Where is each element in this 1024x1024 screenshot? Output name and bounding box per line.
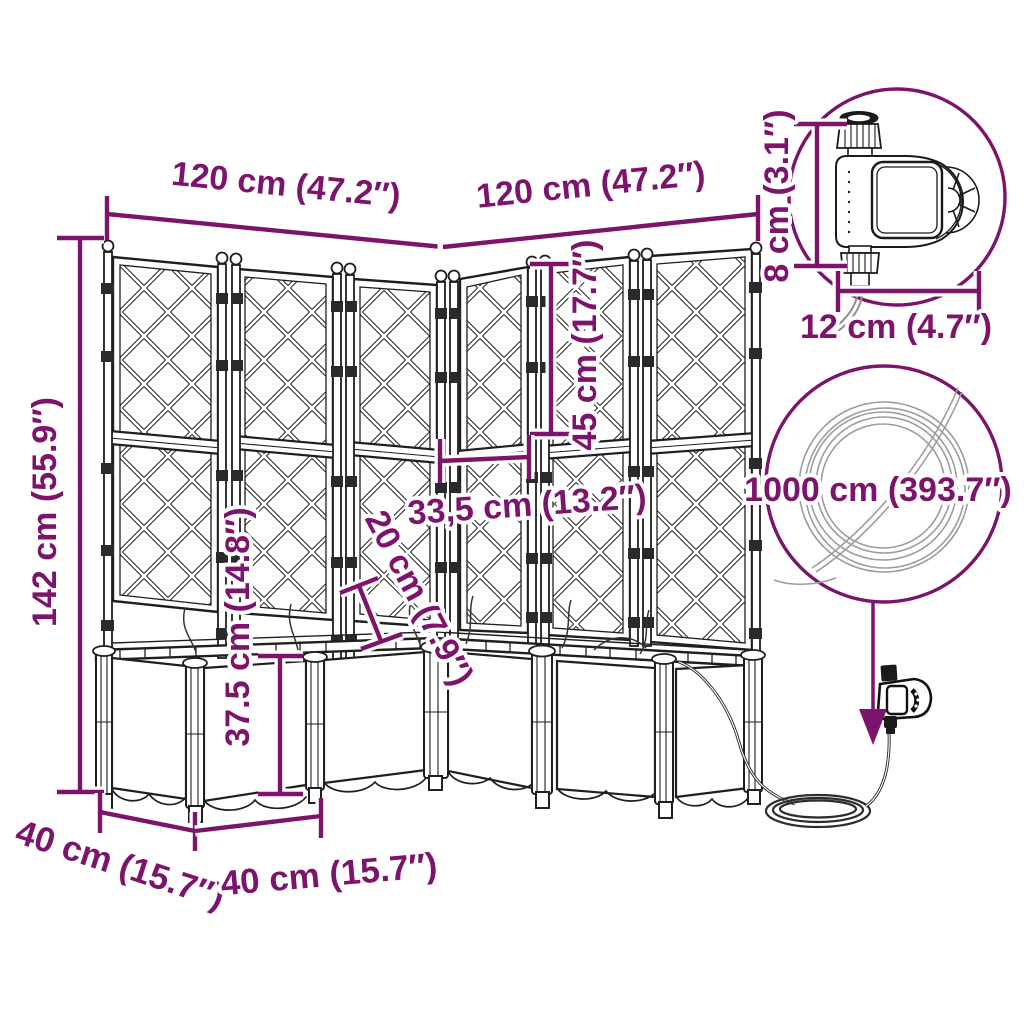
svg-text:12 cm (4.7″): 12 cm (4.7″) <box>800 308 992 346</box>
svg-text:8 cm (3.1″): 8 cm (3.1″) <box>758 109 796 282</box>
svg-text:37.5 cm (14.8″): 37.5 cm (14.8″) <box>219 507 257 746</box>
svg-text:142 cm (55.9″): 142 cm (55.9″) <box>26 397 64 627</box>
svg-text:45 cm (17.7″): 45 cm (17.7″) <box>566 240 604 451</box>
svg-text:1000 cm (393.7″): 1000 cm (393.7″) <box>744 471 1012 509</box>
